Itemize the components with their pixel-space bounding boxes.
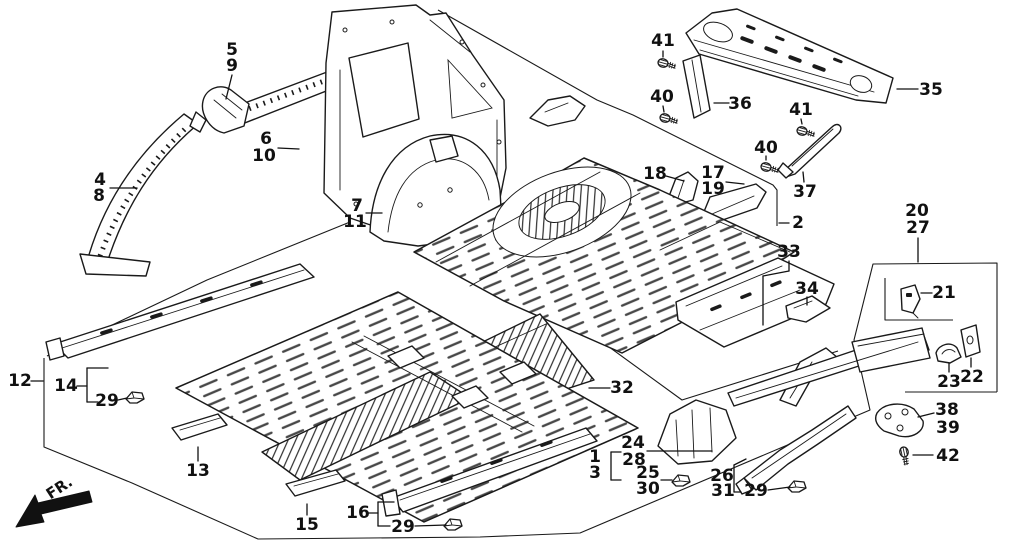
callout-12: 12 [8, 371, 32, 391]
callout-34: 34 [795, 279, 819, 299]
callout-42: 42 [936, 446, 960, 466]
callout-33: 33 [777, 242, 801, 262]
part-bracket-21 [901, 285, 920, 318]
callout-32: 32 [610, 378, 634, 398]
parts-diagram-page: 5961048711414036354140371817192333420272… [0, 0, 1010, 554]
callout-23: 23 [937, 372, 961, 392]
bolt-icon [796, 126, 816, 139]
callout-1-3: 3 [589, 463, 601, 483]
callout-22: 22 [960, 367, 984, 387]
clip-icon [126, 392, 144, 403]
callout-16: 16 [346, 503, 370, 523]
part-plate-38-39 [876, 404, 924, 437]
leader-17-19 [726, 182, 744, 184]
bolt-icon [659, 113, 679, 126]
bolt-icon [760, 162, 780, 175]
part-bracket-22 [961, 325, 980, 357]
callout-21: 21 [932, 283, 956, 303]
callout-14: 14 [54, 376, 78, 396]
part-rear-frame-rail-right [728, 328, 930, 406]
callout-29b: 29 [391, 517, 415, 537]
callout-17-19: 19 [701, 179, 725, 199]
bolt-icon [899, 446, 911, 465]
callout-13: 13 [186, 461, 210, 481]
clip-icon [788, 481, 806, 492]
leader-26-31 [734, 459, 746, 465]
callout-26-31: 31 [711, 481, 735, 501]
callout-4-8: 8 [93, 186, 105, 206]
parts-diagram-canvas: 5961048711414036354140371817192333420272… [0, 0, 1010, 554]
part-small-bracket-center [530, 96, 585, 126]
callout-20-27: 27 [906, 218, 930, 238]
callout-37: 37 [793, 182, 817, 202]
callout-36: 36 [728, 94, 752, 114]
callout-6-10: 10 [252, 146, 276, 166]
part-jack-bracket-24-28 [658, 400, 736, 464]
leader-38-39 [918, 413, 934, 417]
callout-7-11: 11 [343, 212, 367, 232]
callout-40a: 40 [650, 87, 674, 107]
callout-18: 18 [643, 164, 667, 184]
callout-38-39: 39 [936, 418, 960, 438]
clip-icon [672, 475, 690, 486]
callout-40b: 40 [754, 138, 778, 158]
part-rear-shelf [686, 9, 893, 103]
callout-35: 35 [919, 80, 943, 100]
callout-41a: 41 [651, 31, 675, 51]
callout-2: 2 [792, 213, 804, 233]
callout-29a: 29 [95, 391, 119, 411]
callout-5-9: 9 [226, 56, 238, 76]
clip-icon [444, 519, 462, 530]
leader-29c [768, 487, 790, 490]
bolt-icon [657, 58, 677, 71]
callout-15: 15 [295, 515, 319, 535]
part-floor-rail-13 [172, 414, 227, 440]
callout-41b: 41 [789, 100, 813, 120]
part-hook-23 [936, 344, 961, 363]
callout-38-39: 38 [935, 400, 959, 420]
leader-37 [803, 172, 804, 182]
part-shelf-bracket-left [683, 55, 710, 118]
leader-6-10 [278, 148, 299, 149]
fr-direction-indicator: FR. [16, 473, 92, 527]
leader-29b [415, 525, 446, 526]
callout-29c: 29 [744, 481, 768, 501]
callout-25-30: 30 [636, 479, 660, 499]
